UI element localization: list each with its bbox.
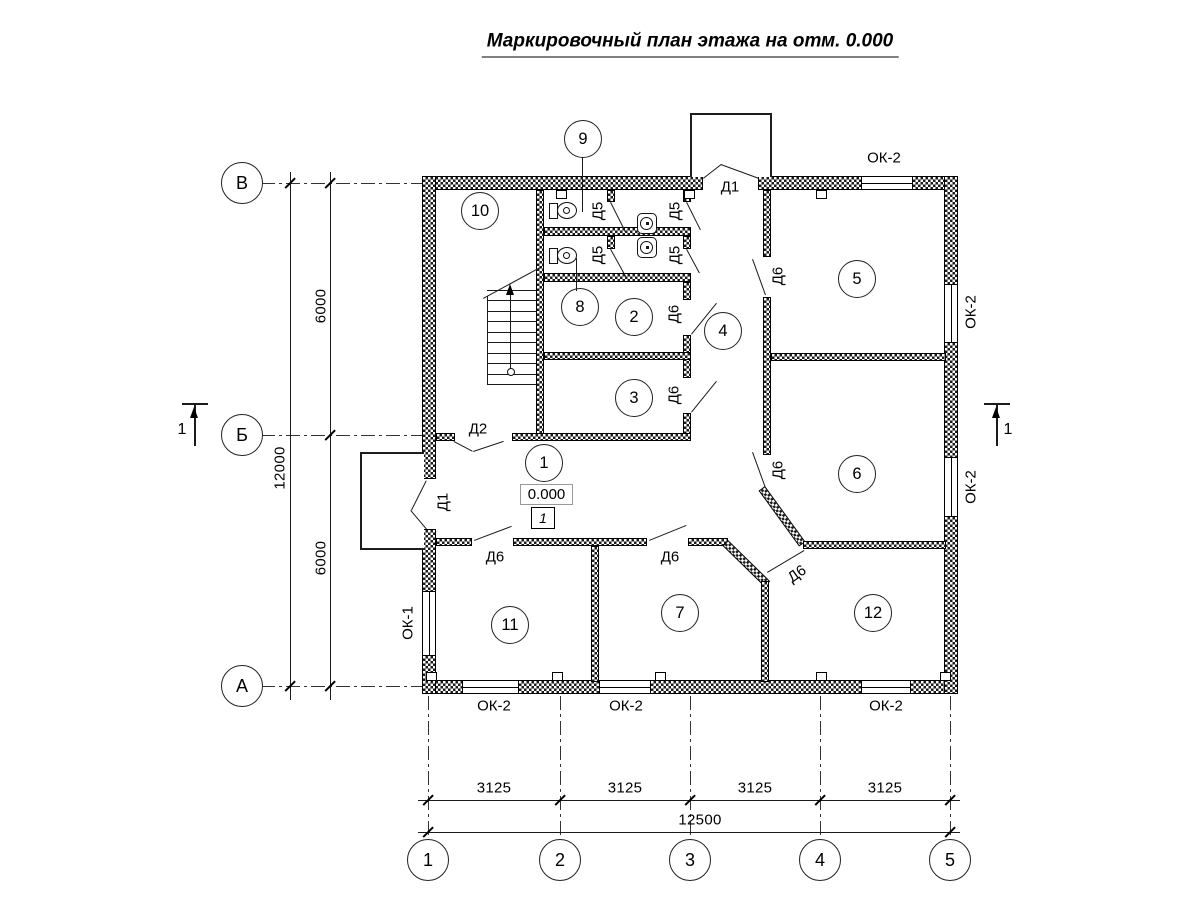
- dimension-line-row-total: [290, 172, 291, 700]
- dimension-value: 6000: [313, 541, 330, 576]
- wall-segment: [683, 236, 691, 249]
- window-ok2-right-1: [944, 285, 958, 342]
- door-swing-d6-room3: [691, 381, 717, 413]
- dimension-value: 6000: [313, 289, 330, 324]
- door-label-d1: Д1: [721, 179, 740, 196]
- door-swing-d2: [453, 441, 472, 452]
- axis-bubble-col-4: 4: [799, 839, 841, 881]
- door-swing-d6-room6: [752, 452, 766, 488]
- window-ok1-left: [422, 592, 436, 655]
- door-label-d6: Д6: [661, 549, 680, 566]
- window-ok2-right-2: [944, 458, 958, 516]
- stair-tread: [487, 332, 536, 333]
- window-label-ok1: ОК-1: [400, 606, 417, 640]
- room9-leader-line: [582, 157, 583, 212]
- wall-segment: [607, 190, 615, 202]
- door-label-d1: Д1: [435, 493, 452, 512]
- wall-segment: [536, 190, 544, 441]
- axis-line-col-2: [560, 696, 561, 842]
- window-ok2-bottom-2: [600, 680, 650, 694]
- room-number-6: 6: [838, 455, 876, 493]
- axis-bubble-col-3: 3: [669, 839, 711, 881]
- door-label-d6: Д6: [785, 562, 810, 587]
- wall-segment: [422, 176, 436, 479]
- axis-line-row-a: [261, 686, 422, 687]
- window-ok2-bottom-1: [463, 680, 518, 694]
- axis-bubble-row-a: А: [221, 665, 263, 707]
- window-label-ok2: ОК-2: [477, 698, 511, 715]
- axis-line-row-v: [261, 183, 422, 184]
- dimension-value: 12000: [272, 446, 289, 489]
- wall-segment: [544, 352, 691, 360]
- door-swing-d6-room5: [752, 259, 766, 295]
- column-marker: [655, 672, 666, 681]
- axis-bubble-row-b: Б: [221, 414, 263, 456]
- axis-bubble-col-2: 2: [539, 839, 581, 881]
- column-marker: [940, 672, 951, 681]
- stair-tread: [487, 300, 536, 301]
- stair-tread: [487, 353, 536, 354]
- wall-segment: [544, 273, 691, 282]
- axis-bubble-row-v: В: [221, 162, 263, 204]
- floor-type-mark: 1: [531, 507, 555, 529]
- window-label-ok2: ОК-2: [867, 150, 901, 167]
- door-label-d6: Д6: [666, 386, 683, 405]
- door-label-d5: Д5: [590, 202, 607, 221]
- axis-line-col-5: [950, 696, 951, 842]
- door-swing-d5: [686, 249, 700, 273]
- room-number-4: 4: [704, 312, 742, 350]
- column-marker: [426, 672, 437, 681]
- wall-segment: [591, 546, 599, 682]
- column-marker: [556, 190, 567, 199]
- wall-segment-diagonal: [759, 486, 806, 547]
- section-arrow-icon: [992, 407, 1000, 418]
- dimension-value: 3125: [868, 780, 903, 797]
- wall-segment: [763, 297, 771, 455]
- column-marker: [816, 190, 827, 199]
- axis-line-col-1: [428, 696, 429, 842]
- wall-segment: [607, 236, 615, 249]
- stair-tread: [487, 363, 536, 364]
- column-marker: [684, 190, 695, 199]
- wall-segment: [944, 516, 958, 694]
- room-number-11: 11: [491, 606, 529, 644]
- door-label-d6: Д6: [770, 461, 787, 480]
- floor-plan-sheet: Маркировочный план этажа на отм. 0.000: [0, 0, 1200, 900]
- dimension-value: 3125: [608, 780, 643, 797]
- axis-line-col-4: [820, 696, 821, 842]
- room-number-7: 7: [661, 594, 699, 632]
- room8-leader-line: [576, 258, 577, 291]
- stair-tread: [487, 311, 536, 312]
- room-number-12: 12: [854, 594, 892, 632]
- wall-segment: [763, 190, 771, 257]
- section-mark-label: 1: [178, 421, 187, 439]
- door-swing-d6-room11: [474, 526, 512, 541]
- window-ok2-bottom-3: [862, 680, 910, 694]
- axis-bubble-col-1: 1: [407, 839, 449, 881]
- dimension-value: 3125: [477, 780, 512, 797]
- wall-segment: [761, 581, 769, 682]
- room-number-2: 2: [615, 298, 653, 336]
- wall-segment: [513, 538, 647, 546]
- door-label-d5: Д5: [667, 202, 684, 221]
- room-number-10: 10: [461, 192, 499, 230]
- elevation-mark: 0.000: [520, 484, 573, 505]
- stair-direction-line: [510, 286, 511, 371]
- dimension-value: 12500: [678, 812, 721, 829]
- dimension-line-row-spans: [330, 172, 331, 700]
- window-label-ok2: ОК-2: [869, 698, 903, 715]
- door-label-d6: Д6: [770, 267, 787, 286]
- room-number-1: 1: [525, 444, 563, 482]
- page-title: Маркировочный план этажа на отм. 0.000: [482, 31, 899, 58]
- stair-direction-arrow: [506, 284, 514, 295]
- wall-segment: [518, 680, 600, 694]
- axis-bubble-col-5: 5: [929, 839, 971, 881]
- stair-tread: [487, 321, 536, 322]
- wall-segment: [436, 433, 455, 441]
- door-label-d6: Д6: [666, 305, 683, 324]
- axis-line-row-b: [261, 435, 422, 436]
- dimension-value: 3125: [738, 780, 773, 797]
- wall-segment: [650, 680, 862, 694]
- room-number-3: 3: [615, 379, 653, 417]
- wall-segment: [683, 282, 691, 300]
- stair-start-circle: [507, 368, 515, 376]
- window-ok2-top: [862, 176, 912, 190]
- wall-segment: [944, 176, 958, 285]
- wall-segment: [944, 342, 958, 458]
- wall-segment: [771, 353, 946, 361]
- stair-tread: [487, 342, 536, 343]
- sink-icon: [646, 246, 649, 249]
- toilet-icon: [563, 207, 570, 214]
- door-label-d5: Д5: [667, 246, 684, 265]
- wall-segment: [544, 227, 691, 236]
- door-label-d5: Д5: [590, 246, 607, 265]
- stair-tread: [487, 384, 536, 385]
- wall-segment: [436, 538, 472, 546]
- sink-icon: [646, 222, 649, 225]
- window-label-ok2: ОК-2: [963, 470, 980, 504]
- door-swing-d2: [473, 441, 504, 452]
- column-marker: [552, 672, 563, 681]
- wall-segment: [803, 541, 946, 549]
- section-mark-label: 1: [1004, 421, 1013, 439]
- door-label-d6: Д6: [486, 549, 505, 566]
- column-marker: [816, 672, 827, 681]
- wall-segment: [758, 176, 862, 190]
- toilet-icon: [563, 252, 570, 259]
- wall-segment: [422, 176, 703, 190]
- wall-segment-diagonal: [722, 540, 770, 587]
- room-number-8: 8: [561, 288, 599, 326]
- section-arrow-icon: [190, 407, 198, 418]
- wall-segment: [422, 529, 436, 592]
- stair-edge: [487, 296, 488, 385]
- wall-segment: [512, 433, 691, 441]
- door-swing-d6-room7: [649, 525, 687, 541]
- window-label-ok2: ОК-2: [609, 698, 643, 715]
- room-number-9: 9: [564, 120, 602, 158]
- dimension-line-col-total: [418, 832, 960, 833]
- window-label-ok2: ОК-2: [963, 295, 980, 329]
- room-number-5: 5: [838, 260, 876, 298]
- door-label-d2: Д2: [469, 421, 488, 438]
